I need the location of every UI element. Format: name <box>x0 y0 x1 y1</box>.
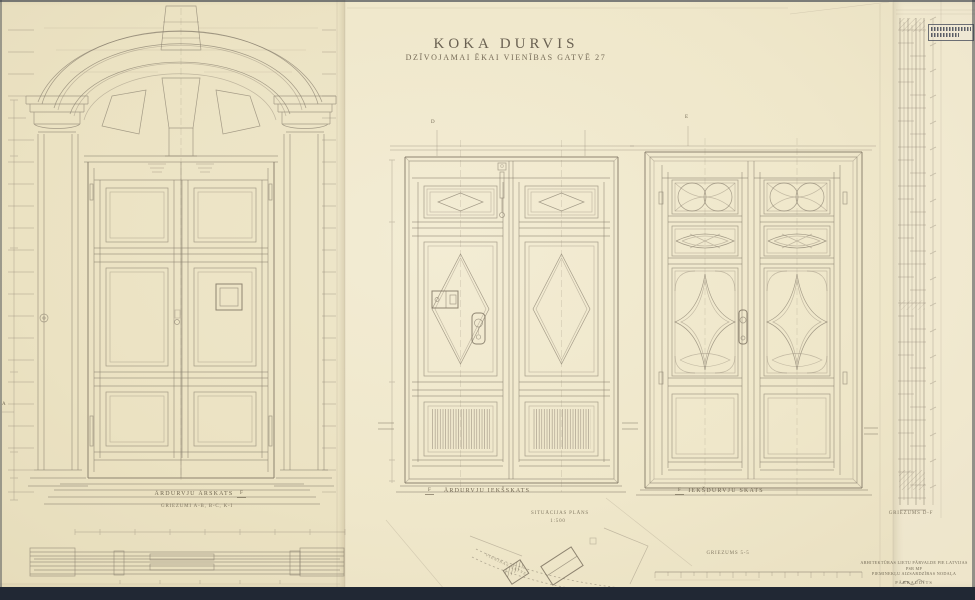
stamp-text-row <box>931 27 971 31</box>
exterior-door-inner-elevation <box>378 130 638 492</box>
marker-f-right: F <box>675 488 684 495</box>
scale-bar <box>655 572 862 580</box>
drawing-linework <box>0 0 975 600</box>
label-section-55: GRIEZUMS 5-5 <box>706 551 749 556</box>
label-exterior-inner-view: ĀRDURVJU IEKŠSKATS <box>444 488 530 494</box>
sheet-title: KOKA DURVIS <box>434 36 579 53</box>
marker-e: E <box>685 115 688 120</box>
stamp-text-row <box>931 33 959 37</box>
vertical-section-strip <box>898 17 936 510</box>
portal-plan-section-drawing <box>30 529 345 584</box>
marker-f-middle: F <box>425 488 434 495</box>
approval-line-3: PĀRBAUDĪTS <box>858 580 970 586</box>
marker-a: A <box>2 402 6 407</box>
scan-edge-left <box>0 0 2 600</box>
scan-edge-top <box>0 0 975 2</box>
inventory-stamp <box>928 24 974 41</box>
label-site-plan: SITUĀCIJAS PLĀNS <box>531 511 589 516</box>
label-interior-view: IEKŠDURVJU SKATS <box>688 488 764 494</box>
approval-line-1: ARHITEKTŪRAS LIETU PĀRVALDE PIE LATVIJAS… <box>858 560 970 571</box>
interior-door-elevation <box>630 126 878 496</box>
marker-d: D <box>431 120 435 125</box>
label-portal-sections: GRIEZUMI A-B, B-C, K-I <box>161 504 233 509</box>
marker-f-portal: F <box>237 491 246 498</box>
sheet-subtitle: DZĪVOJAMAI ĒKAI VIENĪBAS GATVĒ 27 <box>406 53 607 62</box>
approval-line-2: PIEMINEKĻU AIZSARDZĪBAS NODAĻA <box>858 571 970 577</box>
label-portal-view: ĀRDURVJU ĀRSKATS <box>155 491 234 497</box>
portal-elevation-drawing <box>2 6 336 504</box>
label-section-df: GRIEZUMS D-F <box>889 511 933 516</box>
label-site-plan-scale: 1:500 <box>550 519 565 524</box>
sheet-edges <box>0 0 975 596</box>
scanned-drawing-sheet: KOKA DURVIS DZĪVOJAMAI ĒKAI VIENĪBAS GAT… <box>0 0 975 600</box>
scanner-bed-strip <box>0 587 975 600</box>
